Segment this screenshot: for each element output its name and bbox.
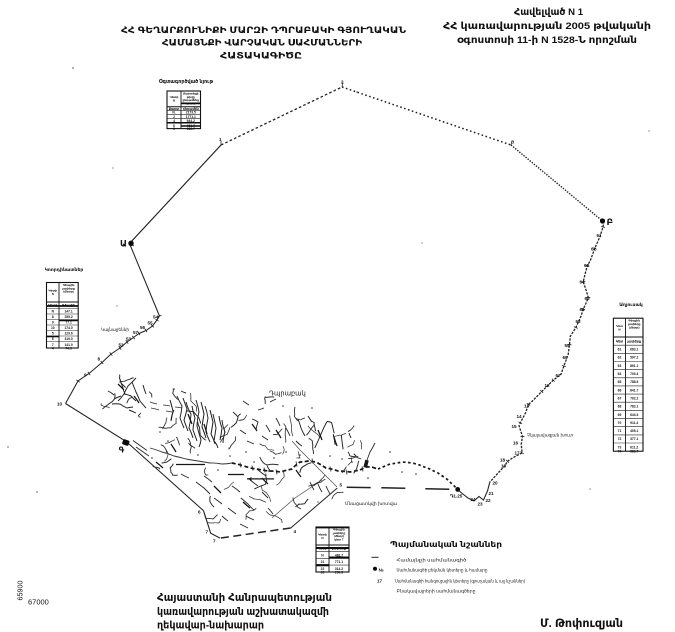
svg-text:66: 66 xyxy=(580,307,586,312)
svg-text:N: N xyxy=(618,327,620,331)
svg-text:74: 74 xyxy=(618,450,622,454)
svg-text:147.1: 147.1 xyxy=(64,310,72,314)
svg-text:377.1: 377.1 xyxy=(630,437,638,441)
svg-text:55: 55 xyxy=(148,321,154,326)
svg-text:9: 9 xyxy=(52,321,54,325)
svg-text:783.1: 783.1 xyxy=(630,405,638,409)
svg-text:23: 23 xyxy=(478,502,484,507)
svg-text:891.1: 891.1 xyxy=(630,364,638,368)
svg-text:65900: 65900 xyxy=(16,581,25,601)
svg-text:841.7: 841.7 xyxy=(630,388,638,392)
svg-text:10: 10 xyxy=(51,326,55,330)
svg-text:6: 6 xyxy=(198,510,201,515)
svg-text:7: 7 xyxy=(213,539,216,544)
svg-text:62: 62 xyxy=(591,247,597,252)
svg-text:Բ: Բ xyxy=(607,217,614,227)
svg-text:№: № xyxy=(379,567,384,572)
svg-text:57: 57 xyxy=(133,330,139,335)
svg-text:405.1: 405.1 xyxy=(630,429,638,433)
svg-text:70: 70 xyxy=(618,421,622,425)
svg-text:69: 69 xyxy=(618,413,622,417)
svg-text:8: 8 xyxy=(98,357,101,362)
svg-text:ՀՀ կառավարության 2005 թվականի: ՀՀ կառավարության 2005 թվականի xyxy=(443,21,651,32)
svg-text:9: 9 xyxy=(84,373,87,378)
svg-text:683.1: 683.1 xyxy=(630,348,638,352)
svg-text:67: 67 xyxy=(618,397,622,401)
svg-text:68: 68 xyxy=(618,405,622,409)
svg-text:1: 1 xyxy=(219,137,222,142)
svg-text:319.0: 319.0 xyxy=(64,337,72,341)
svg-text:Հավելված N 1: Հավելված N 1 xyxy=(514,7,584,18)
svg-text:23: 23 xyxy=(321,570,325,574)
svg-text:(մետր): (մետր) xyxy=(629,325,640,329)
svg-text:255.2: 255.2 xyxy=(64,315,72,319)
svg-text:62: 62 xyxy=(618,356,622,360)
svg-text:129.6: 129.6 xyxy=(64,332,72,336)
svg-text:ՀԱՄԱՅՆՔԻ ՎԱՐՉԱԿԱՆ ՍԱՀՄԱՆՆԵՐԻ: ՀԱՄԱՅՆՔԻ ՎԱՐՉԱԿԱՆ ՍԱՀՄԱՆՆԵՐԻ xyxy=(162,38,362,48)
svg-text:61: 61 xyxy=(597,233,603,238)
svg-text:Սահմանագծի հանգուցային կետերը: Սահմանագծի հանգուցային կետերը (գյուղական… xyxy=(395,579,526,584)
svg-text:17: 17 xyxy=(515,451,521,456)
svg-text:Չկալավագյան խուտ: Չկալավագյան խուտ xyxy=(527,433,573,438)
svg-text:53: 53 xyxy=(126,337,132,342)
svg-text:21: 21 xyxy=(321,560,325,564)
svg-text:24: 24 xyxy=(471,497,477,502)
svg-text:20: 20 xyxy=(493,481,499,486)
svg-text:54: 54 xyxy=(153,315,159,320)
svg-text:(մետր): (մետր) xyxy=(63,290,74,294)
svg-text:Մ. Թոփուզյան: Մ. Թոփուզյան xyxy=(540,617,623,630)
svg-text:6: 6 xyxy=(52,337,54,341)
svg-text:Աղյուսակ: Աղյուսակ xyxy=(619,302,643,307)
svg-text:174.0: 174.0 xyxy=(64,326,72,330)
svg-text:18: 18 xyxy=(500,458,506,463)
svg-text:22: 22 xyxy=(486,498,492,503)
svg-text:N: N xyxy=(52,292,54,296)
svg-text:74.3: 74.3 xyxy=(65,346,72,350)
svg-text:16: 16 xyxy=(513,441,519,446)
svg-text:982.7: 982.7 xyxy=(187,127,195,131)
svg-text:10: 10 xyxy=(57,402,63,407)
svg-text:Համայնքի սահմանագիծ: Համայնքի սահմանագիծ xyxy=(397,558,467,563)
svg-text:64: 64 xyxy=(580,280,586,285)
svg-text:4: 4 xyxy=(52,346,54,350)
svg-text:21: 21 xyxy=(489,491,495,496)
svg-text:72: 72 xyxy=(618,437,622,441)
svg-text:Մնացատկվի խոտվա: Մնացատկվի խոտվա xyxy=(345,501,398,506)
svg-text:59: 59 xyxy=(565,343,571,348)
svg-text:Պայմանական նշաններ: Պայմանական նշաններ xyxy=(390,540,502,549)
svg-text:ՀԱՏԱԿԱԳԻԾԸ: ՀԱՏԱԿԱԳԻԾԸ xyxy=(220,51,302,61)
svg-text:5: 5 xyxy=(340,483,343,488)
svg-text:N: N xyxy=(321,536,323,540)
svg-text:597.2: 597.2 xyxy=(630,356,638,360)
svg-text:792.2: 792.2 xyxy=(630,397,638,401)
svg-text:14: 14 xyxy=(517,414,523,419)
svg-text:644.3: 644.3 xyxy=(630,413,638,417)
svg-text:63: 63 xyxy=(584,263,590,268)
svg-text:56: 56 xyxy=(140,325,146,330)
svg-text:583.7: 583.7 xyxy=(630,450,638,454)
svg-text:8: 8 xyxy=(52,315,54,319)
svg-text:771.1: 771.1 xyxy=(335,560,343,564)
svg-text:3: 3 xyxy=(173,127,175,131)
svg-text:65: 65 xyxy=(618,380,622,384)
svg-text:3: 3 xyxy=(512,140,515,145)
svg-text:61: 61 xyxy=(618,348,622,352)
svg-text:2: 2 xyxy=(341,80,344,85)
svg-text:Օգտագործված նյութ: Օգտագործված նյութ xyxy=(159,79,214,85)
svg-text:64: 64 xyxy=(618,372,622,376)
svg-text:13: 13 xyxy=(524,404,530,409)
svg-text:Կալնաջեննի: Կալնաջեննի xyxy=(101,327,129,332)
svg-text:Դ1.25: Դ1.25 xyxy=(450,493,463,498)
svg-text:63: 63 xyxy=(618,364,622,368)
svg-text:N: N xyxy=(173,99,175,103)
svg-text:67: 67 xyxy=(556,373,562,378)
svg-text:կառավարության աշխատակազմի: կառավարության աշխատակազմի xyxy=(157,606,329,618)
svg-text:Կոորդինատներ: Կոորդինատներ xyxy=(45,267,84,272)
svg-text:կետ 7: կետ 7 xyxy=(334,538,343,542)
svg-text:7: 7 xyxy=(206,530,209,535)
svg-text:չափերը: չափերը xyxy=(627,339,641,343)
svg-text:օգոստոսի 11-ի N 1528-Ն որոշման: օգոստոսի 11-ի N 1528-Ն որոշման xyxy=(457,35,637,46)
svg-text:290.3: 290.3 xyxy=(335,570,343,574)
svg-text:ղեկավար-նախարար: ղեկավար-նախարար xyxy=(157,620,264,632)
svg-text:911.4: 911.4 xyxy=(630,421,638,425)
svg-text:60: 60 xyxy=(563,355,569,360)
svg-text:71: 71 xyxy=(618,429,622,433)
svg-text:Բնակավայրերի սահմանագծերը: Բնակավայրերի սահմանագծերը xyxy=(397,589,476,594)
svg-text:65: 65 xyxy=(585,296,591,301)
svg-text:58: 58 xyxy=(576,319,582,324)
svg-text:Հայաստանի Հանրապետության: Հայաստանի Հանրապետության xyxy=(157,592,332,604)
svg-text:17: 17 xyxy=(377,579,383,584)
svg-text:788.5: 788.5 xyxy=(630,380,638,384)
svg-text:Սահմանագծի բեկման կետերը և համ: Սահմանագծի բեկման կետերը և համարը xyxy=(397,568,488,573)
svg-text:ՀՀ ԳԵՂԱՐՔՈՒՆԻՔԻ ՄԱՐԶԻ ԴՊՐԱԲԱԿԻ: ՀՀ ԳԵՂԱՐՔՈՒՆԻՔԻ ՄԱՐԶԻ ԴՊՐԱԲԱԿԻ ԳՅՈՒՂԱԿԱՆ xyxy=(121,25,407,35)
svg-text:67000: 67000 xyxy=(28,598,49,607)
svg-text:66: 66 xyxy=(618,388,622,392)
svg-text:12: 12 xyxy=(545,383,551,388)
svg-text:4: 4 xyxy=(294,529,297,534)
svg-text:Կետ: Կետ xyxy=(616,339,624,343)
svg-text:703.4: 703.4 xyxy=(630,372,638,376)
svg-text:19: 19 xyxy=(501,464,507,469)
svg-text:Ա: Ա xyxy=(120,238,127,248)
svg-text:5: 5 xyxy=(52,332,54,336)
svg-text:Գ: Գ xyxy=(119,445,125,454)
svg-text:Դպրաբակ: Դպրաբակ xyxy=(269,391,306,398)
svg-text:52: 52 xyxy=(119,343,125,348)
svg-text:15: 15 xyxy=(512,424,518,429)
